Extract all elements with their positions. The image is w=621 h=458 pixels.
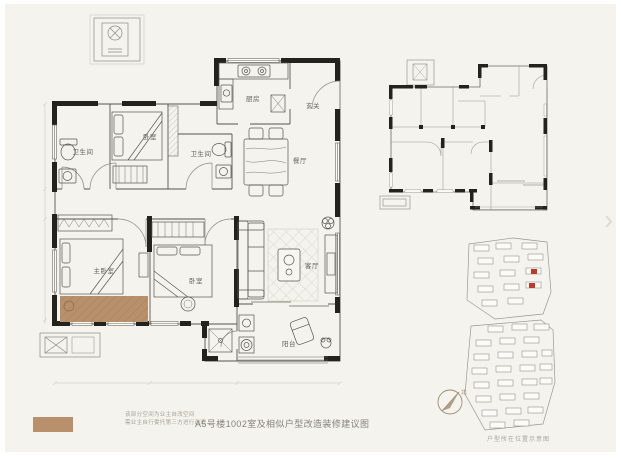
room-label-entry: 玄关 bbox=[306, 101, 320, 110]
washbasin-2 bbox=[216, 165, 231, 178]
fridge bbox=[271, 95, 285, 112]
compass-icon: 北 bbox=[438, 388, 467, 414]
dining-table bbox=[244, 128, 288, 196]
room-label-bathroom-2: 卫生间 bbox=[191, 149, 212, 158]
wardrobe-1 bbox=[113, 166, 147, 183]
round-stool bbox=[181, 297, 195, 311]
struct-piers bbox=[389, 64, 547, 210]
plant-living bbox=[322, 217, 334, 229]
master-wardrobe bbox=[58, 215, 112, 231]
wardrobe-2 bbox=[152, 222, 204, 237]
highlight-zone bbox=[60, 296, 148, 322]
toilet-2 bbox=[212, 142, 231, 157]
renovation-drawing-page: 卫生间 卧室 卫生间 厨房 玄关 餐厅 主卧室 卧室 客厅 阳台 bbox=[0, 0, 621, 458]
washing-machine bbox=[239, 337, 254, 353]
room-label-living-room: 客厅 bbox=[305, 261, 319, 270]
room-label-dining: 餐厅 bbox=[293, 156, 307, 165]
structural-floor-plan bbox=[379, 58, 591, 226]
room-label-bedroom-1: 卧室 bbox=[143, 132, 157, 141]
struct-ac-platform-top bbox=[407, 60, 434, 85]
legend-color-swatch bbox=[33, 417, 73, 432]
stove bbox=[238, 65, 270, 77]
buildings bbox=[472, 243, 552, 428]
compass-north-label: 北 bbox=[461, 388, 467, 396]
drawing-sheet: 卫生间 卧室 卫生间 厨房 玄关 餐厅 主卧室 卧室 客厅 阳台 bbox=[5, 4, 616, 452]
shower bbox=[209, 329, 232, 352]
room-label-kitchen: 厨房 bbox=[246, 94, 260, 103]
ac-platform-top bbox=[90, 15, 144, 64]
struct-windows bbox=[390, 100, 547, 210]
coffee-table bbox=[278, 249, 300, 281]
master-dresser bbox=[139, 253, 148, 277]
struct-ac-box-bottom bbox=[380, 196, 410, 209]
site-plan-caption: 户型所在位置示意图 bbox=[487, 434, 550, 443]
drawing-title: A5号楼1002室及相似户型改造装修建议图 bbox=[195, 417, 395, 430]
room-label-master-bedroom: 主卧室 bbox=[94, 266, 115, 275]
room-label-bedroom-2: 卧室 bbox=[189, 276, 203, 285]
balcony-sink bbox=[239, 315, 254, 331]
master-bed bbox=[60, 239, 123, 294]
detailed-floor-plan: 卫生间 卧室 卫生间 厨房 玄关 餐厅 主卧室 卧室 客厅 阳台 bbox=[38, 9, 350, 401]
room-label-bathroom-1: 卫生间 bbox=[73, 147, 94, 156]
bed-2 bbox=[154, 245, 212, 297]
site-plan: 北 bbox=[430, 234, 590, 439]
washbasin-1 bbox=[59, 169, 76, 183]
sofa bbox=[238, 221, 264, 299]
kitchen-sink bbox=[221, 85, 232, 102]
carousel-next-arrow[interactable]: › bbox=[604, 206, 613, 234]
duct-shaft bbox=[168, 106, 178, 156]
ac-platform-bottom-left bbox=[40, 333, 100, 357]
legend: 该部分空间为业主自改空间 需业主自行委托第三方进行改造 bbox=[33, 412, 206, 432]
room-label-balcony: 阳台 bbox=[282, 339, 296, 348]
plant-balcony bbox=[321, 338, 331, 348]
